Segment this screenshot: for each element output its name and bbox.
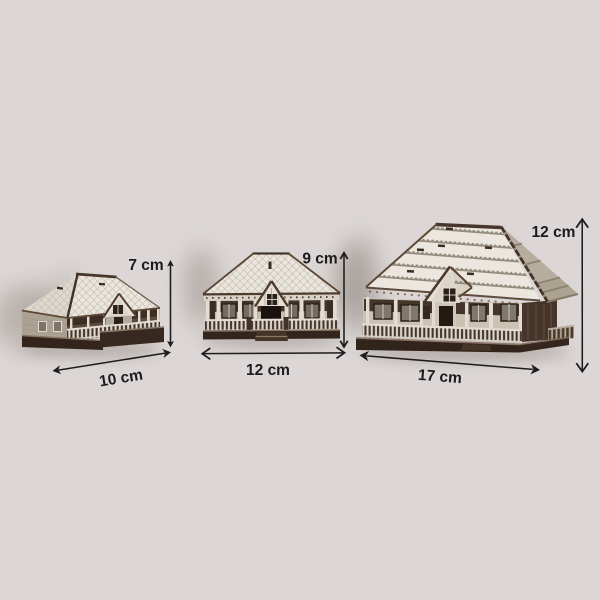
svg-text:12 cm: 12 cm (246, 362, 290, 379)
svg-text:12 cm: 12 cm (532, 224, 576, 241)
svg-text:9 cm: 9 cm (302, 251, 337, 268)
svg-text:17 cm: 17 cm (417, 367, 462, 387)
svg-text:7 cm: 7 cm (128, 257, 163, 274)
